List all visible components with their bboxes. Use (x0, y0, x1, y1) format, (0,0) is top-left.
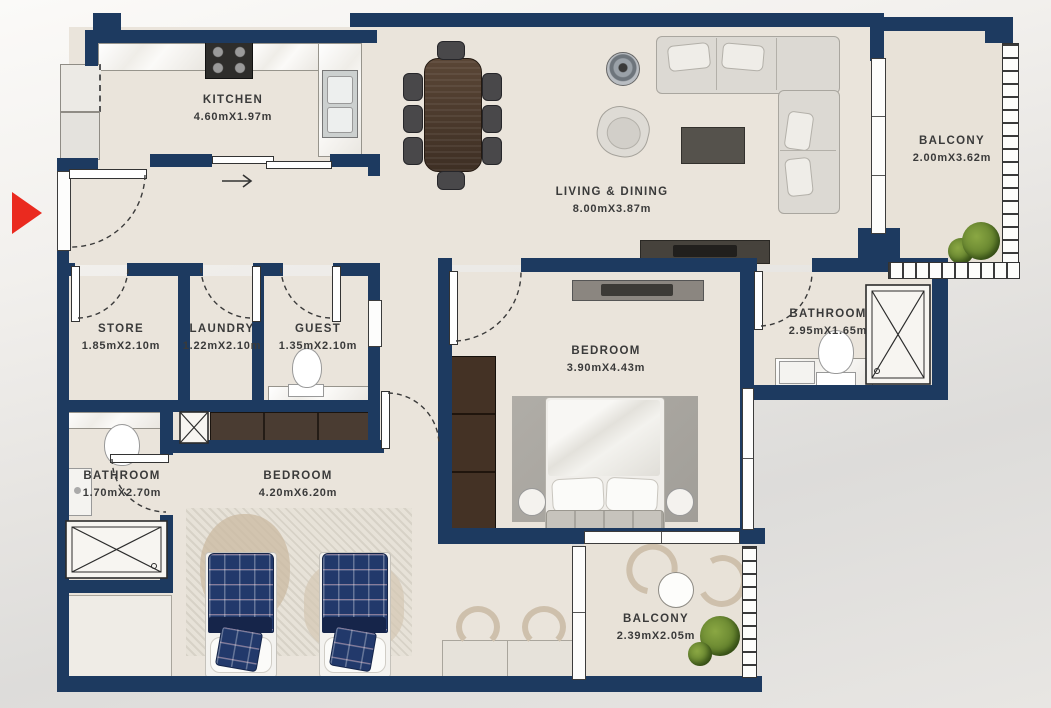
room-label-bathroom-right: BATHROOM 2.95mX1.65m (789, 306, 868, 340)
room-name: BATHROOM (83, 468, 162, 485)
room-dims: 2.95mX1.65m (789, 323, 868, 340)
slide-direction-arrow-icon (222, 175, 251, 187)
room-name: STORE (82, 321, 161, 338)
room-label-laundry: LAUNDRY 1.22mX2.10m (183, 321, 262, 355)
room-name: BATHROOM (789, 306, 868, 323)
room-name: BALCONY (913, 133, 992, 150)
door-swing-arc (281, 268, 330, 318)
room-name: LIVING & DINING (556, 184, 669, 201)
room-name: BEDROOM (567, 343, 646, 360)
floor-plan: KITCHEN 4.60mX1.97m LIVING & DINING 8.00… (0, 0, 1051, 708)
room-dims: 2.00mX3.62m (913, 150, 992, 167)
room-dims: 1.70mX2.70m (83, 485, 162, 502)
room-dims: 1.22mX2.10m (183, 338, 262, 355)
room-label-bathroom-left: BATHROOM 1.70mX2.70m (83, 468, 162, 502)
room-name: KITCHEN (194, 92, 273, 109)
room-dims: 1.35mX2.10m (279, 338, 358, 355)
door-swing-arc (388, 393, 439, 445)
room-label-balcony-bottom: BALCONY 2.39mX2.05m (617, 611, 696, 645)
room-name: GUEST (279, 321, 358, 338)
door-swing-arc (69, 175, 145, 247)
room-dims: 4.60mX1.97m (194, 109, 273, 126)
door-swing-arc (201, 268, 250, 318)
room-dims: 2.39mX2.05m (617, 628, 696, 645)
room-label-guest: GUEST 1.35mX2.10m (279, 321, 358, 355)
room-name: BEDROOM (259, 468, 338, 485)
room-dims: 4.20mX6.20m (259, 485, 338, 502)
room-label-balcony-top: BALCONY 2.00mX3.62m (913, 133, 992, 167)
room-name: BALCONY (617, 611, 696, 628)
room-dims: 8.00mX3.87m (556, 201, 669, 218)
room-label-bedroom-master: BEDROOM 3.90mX4.43m (567, 343, 646, 377)
room-label-store: STORE 1.85mX2.10m (82, 321, 161, 355)
room-label-bedroom-second: BEDROOM 4.20mX6.20m (259, 468, 338, 502)
room-dims: 1.85mX2.10m (82, 338, 161, 355)
room-label-living-dining: LIVING & DINING 8.00mX3.87m (556, 184, 669, 218)
room-dims: 3.90mX4.43m (567, 360, 646, 377)
door-swing-arc (456, 272, 521, 341)
room-label-kitchen: KITCHEN 4.60mX1.97m (194, 92, 273, 126)
room-name: LAUNDRY (183, 321, 262, 338)
door-swing-arc (78, 268, 128, 318)
